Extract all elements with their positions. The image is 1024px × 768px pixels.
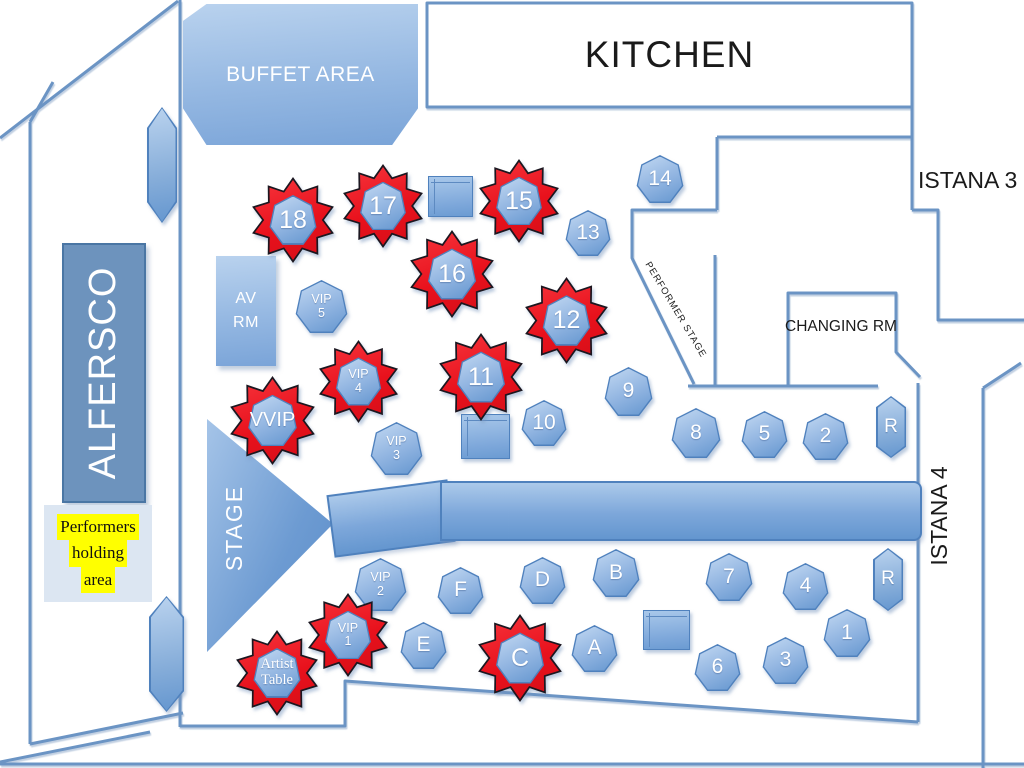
pillar — [149, 596, 184, 712]
table-c[interactable]: C — [476, 614, 564, 702]
table-vip-5[interactable]: VIP5 — [295, 280, 348, 333]
table-artist-table[interactable]: ArtistTable — [234, 630, 320, 716]
table-r[interactable]: R — [876, 396, 906, 458]
table-vvip[interactable]: VVIP — [228, 376, 317, 465]
table-label: R — [876, 396, 906, 458]
table-16[interactable]: 16 — [408, 230, 496, 318]
table-9[interactable]: 9 — [604, 367, 653, 416]
table-label: 6 — [694, 644, 741, 691]
table-r[interactable]: R — [873, 548, 903, 611]
table-label: D — [519, 557, 566, 604]
table-label: 4 — [782, 563, 829, 610]
table-label: B — [592, 549, 640, 597]
table-label: E — [400, 622, 447, 669]
table-label: ArtistTable — [234, 630, 320, 716]
table-label: 7 — [705, 553, 753, 601]
table-10[interactable]: 10 — [521, 400, 567, 446]
table-label: VVIP — [228, 376, 317, 465]
table-2[interactable]: 2 — [802, 413, 849, 460]
table-label: 9 — [604, 367, 653, 416]
table-4[interactable]: 4 — [782, 563, 829, 610]
table-label: R — [873, 548, 903, 611]
table-label: 8 — [671, 408, 721, 458]
table-label: 2 — [802, 413, 849, 460]
service-table — [428, 176, 473, 217]
tables-layer: 1413VIP5VIP3VIP2910852FDBEA74163RR181715… — [0, 0, 1024, 768]
table-label: VIP3 — [370, 422, 423, 475]
table-vip-3[interactable]: VIP3 — [370, 422, 423, 475]
table-5[interactable]: 5 — [741, 411, 788, 458]
table-label: 3 — [762, 637, 809, 684]
table-12[interactable]: 12 — [523, 277, 610, 364]
table-13[interactable]: 13 — [565, 210, 611, 256]
table-6[interactable]: 6 — [694, 644, 741, 691]
table-7[interactable]: 7 — [705, 553, 753, 601]
table-label: C — [476, 614, 564, 702]
table-label: 1 — [823, 609, 871, 657]
table-8[interactable]: 8 — [671, 408, 721, 458]
service-table — [643, 610, 690, 650]
table-11[interactable]: 11 — [437, 333, 525, 421]
table-1[interactable]: 1 — [823, 609, 871, 657]
table-label: 5 — [741, 411, 788, 458]
table-label: 18 — [250, 177, 336, 263]
table-label: 13 — [565, 210, 611, 256]
pillar — [147, 107, 177, 223]
table-d[interactable]: D — [519, 557, 566, 604]
floor-plan: BUFFET AREA ALFERSCO Performers holding … — [0, 0, 1024, 768]
table-label: VIP4 — [317, 340, 400, 423]
table-label: 12 — [523, 277, 610, 364]
table-3[interactable]: 3 — [762, 637, 809, 684]
table-e[interactable]: E — [400, 622, 447, 669]
table-b[interactable]: B — [592, 549, 640, 597]
table-vip-4[interactable]: VIP4 — [317, 340, 400, 423]
table-18[interactable]: 18 — [250, 177, 336, 263]
table-label: 14 — [636, 155, 684, 203]
table-14[interactable]: 14 — [636, 155, 684, 203]
table-label: 10 — [521, 400, 567, 446]
table-label: 11 — [437, 333, 525, 421]
table-label: VIP5 — [295, 280, 348, 333]
table-label: F — [437, 567, 484, 614]
table-a[interactable]: A — [571, 625, 618, 672]
table-label: 16 — [408, 230, 496, 318]
table-label: A — [571, 625, 618, 672]
table-f[interactable]: F — [437, 567, 484, 614]
